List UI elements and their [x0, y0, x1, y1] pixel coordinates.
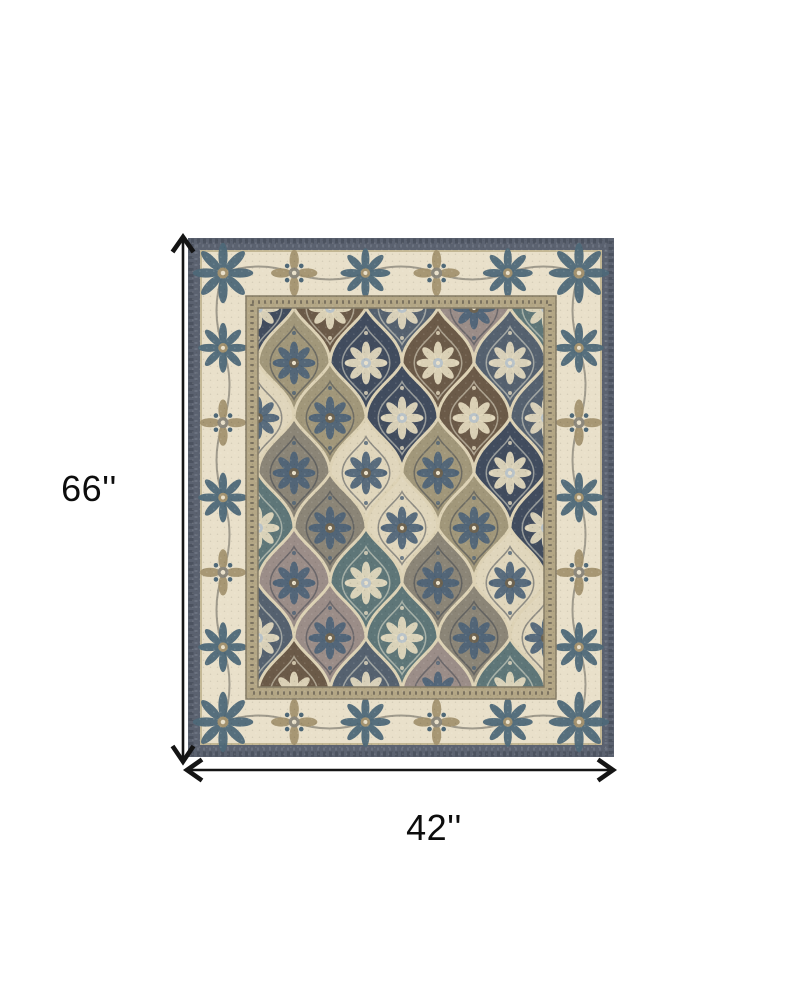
height-dimension-label: 66'' [46, 471, 132, 507]
rug-photo [188, 238, 614, 757]
height-dimension-arrow [168, 230, 198, 770]
dimension-diagram: 66'' 42'' [0, 0, 802, 1000]
rug-texture-overlay [188, 238, 614, 757]
width-dimension-label: 42'' [391, 810, 477, 846]
width-dimension-arrow [180, 755, 620, 785]
rug-graphic [188, 238, 614, 757]
